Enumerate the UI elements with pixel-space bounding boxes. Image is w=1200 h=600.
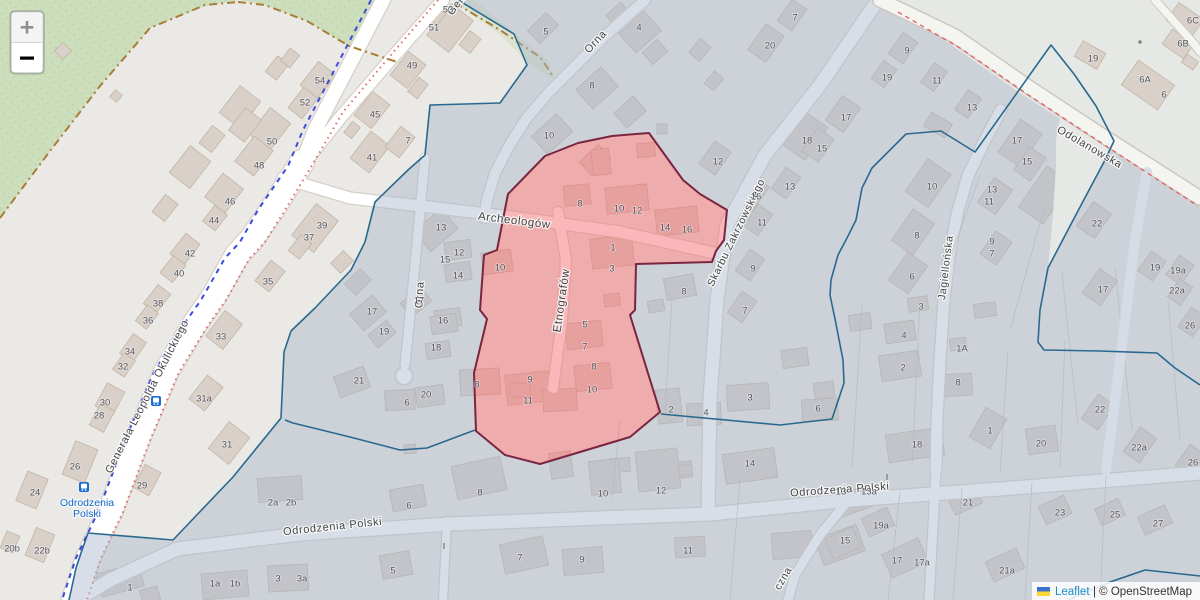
svg-text:10: 10 (927, 182, 938, 193)
svg-text:15: 15 (440, 255, 451, 266)
svg-text:22a: 22a (1131, 443, 1148, 454)
svg-text:5: 5 (390, 566, 395, 577)
svg-text:10: 10 (587, 385, 598, 396)
svg-text:8: 8 (477, 488, 482, 499)
svg-text:11: 11 (523, 396, 533, 407)
svg-text:7: 7 (989, 249, 994, 260)
svg-text:3: 3 (609, 264, 614, 275)
svg-text:17a: 17a (914, 558, 931, 569)
svg-text:11: 11 (683, 546, 693, 557)
svg-text:22a: 22a (1169, 286, 1186, 297)
svg-text:8: 8 (577, 199, 582, 210)
svg-text:40: 40 (174, 269, 185, 280)
svg-text:32: 32 (118, 362, 129, 373)
svg-text:31: 31 (222, 440, 233, 451)
svg-text:27: 27 (1153, 519, 1164, 530)
svg-text:13: 13 (836, 487, 847, 498)
svg-text:44: 44 (209, 216, 220, 227)
svg-text:6: 6 (815, 404, 820, 415)
svg-text:16: 16 (751, 192, 762, 203)
svg-text:13: 13 (436, 223, 447, 234)
svg-text:11: 11 (932, 76, 942, 87)
svg-text:9: 9 (527, 375, 532, 386)
svg-text:7: 7 (517, 553, 522, 564)
svg-text:3a: 3a (297, 574, 308, 585)
svg-text:20: 20 (421, 390, 432, 401)
svg-text:29: 29 (137, 481, 148, 492)
svg-text:28: 28 (94, 411, 105, 422)
svg-text:4: 4 (901, 331, 906, 342)
svg-text:17: 17 (841, 113, 852, 124)
svg-text:11: 11 (984, 197, 994, 208)
svg-text:54: 54 (315, 76, 326, 87)
svg-text:16: 16 (682, 225, 693, 236)
svg-text:19: 19 (1088, 54, 1099, 65)
svg-text:41: 41 (367, 153, 378, 164)
svg-text:1a: 1a (210, 579, 221, 590)
svg-text:12: 12 (713, 157, 724, 168)
svg-text:17: 17 (1098, 285, 1109, 296)
svg-text:42: 42 (185, 249, 196, 260)
svg-text:17: 17 (367, 307, 378, 318)
svg-text:1A: 1A (956, 344, 968, 355)
svg-text:18: 18 (802, 136, 813, 147)
svg-text:9: 9 (579, 555, 584, 566)
svg-text:1: 1 (127, 583, 132, 594)
svg-text:51: 51 (429, 23, 440, 34)
svg-text:20: 20 (1036, 439, 1047, 450)
svg-text:7: 7 (792, 13, 797, 24)
svg-text:12: 12 (632, 206, 643, 217)
svg-text:15: 15 (840, 536, 851, 547)
svg-text:26: 26 (70, 462, 81, 473)
svg-text:8: 8 (681, 287, 686, 298)
svg-text:2: 2 (668, 405, 673, 416)
svg-text:Polski: Polski (73, 508, 101, 520)
svg-text:52: 52 (300, 98, 311, 109)
svg-text:21a: 21a (999, 566, 1016, 577)
svg-text:Leaflet: Leaflet (1055, 586, 1090, 598)
svg-text:3: 3 (918, 302, 923, 313)
svg-text:33: 33 (216, 332, 227, 343)
svg-text:45: 45 (370, 110, 381, 121)
svg-text:4: 4 (703, 408, 708, 419)
svg-text:24: 24 (30, 488, 41, 499)
svg-text:6A: 6A (1139, 75, 1151, 86)
svg-text:6B: 6B (1177, 39, 1189, 50)
svg-text:35: 35 (263, 277, 274, 288)
svg-text:9: 9 (750, 264, 755, 275)
svg-text:2: 2 (900, 363, 905, 374)
svg-text:12: 12 (656, 486, 667, 497)
svg-text:14: 14 (453, 271, 464, 282)
svg-text:3: 3 (275, 574, 280, 585)
svg-text:2a: 2a (268, 498, 279, 509)
svg-text:5: 5 (582, 320, 587, 331)
svg-text:17: 17 (1012, 136, 1023, 147)
svg-text:10: 10 (614, 204, 625, 215)
svg-text:22b: 22b (34, 546, 50, 557)
svg-text:1: 1 (987, 426, 992, 437)
svg-text:6C: 6C (1187, 16, 1199, 27)
svg-text:13: 13 (785, 182, 796, 193)
svg-text:1: 1 (610, 243, 615, 254)
svg-text:17: 17 (892, 556, 903, 567)
svg-text:1b: 1b (230, 579, 241, 590)
svg-text:49: 49 (407, 61, 418, 72)
svg-text:7: 7 (582, 342, 587, 353)
svg-text:18: 18 (912, 440, 923, 451)
svg-text:25: 25 (1110, 510, 1121, 521)
svg-text:19: 19 (882, 73, 893, 84)
svg-text:50: 50 (267, 137, 278, 148)
svg-text:10: 10 (598, 489, 609, 500)
svg-text:11: 11 (757, 218, 767, 229)
svg-text:9: 9 (904, 46, 909, 57)
svg-text:13: 13 (967, 103, 978, 114)
svg-text:6: 6 (1161, 90, 1166, 101)
svg-text:46: 46 (225, 197, 236, 208)
svg-text:26: 26 (1185, 321, 1196, 332)
svg-text:21: 21 (963, 498, 974, 509)
svg-text:12: 12 (454, 248, 465, 259)
svg-text:19: 19 (379, 327, 390, 338)
svg-text:37: 37 (304, 233, 315, 244)
svg-text:6: 6 (406, 501, 411, 512)
svg-text:6: 6 (909, 272, 914, 283)
svg-text:3: 3 (747, 393, 752, 404)
svg-text:7: 7 (742, 306, 747, 317)
svg-text:18: 18 (431, 343, 442, 354)
svg-text:4: 4 (636, 23, 641, 34)
svg-text:17: 17 (414, 296, 425, 307)
svg-text:19a: 19a (873, 521, 890, 532)
svg-text:13a: 13a (861, 487, 878, 498)
svg-text:14: 14 (745, 459, 756, 470)
svg-text:38: 38 (153, 299, 164, 310)
svg-text:31a: 31a (196, 394, 213, 405)
svg-text:36: 36 (143, 316, 154, 327)
svg-text:6: 6 (404, 398, 409, 409)
svg-text:53: 53 (443, 5, 454, 16)
svg-text:8: 8 (591, 362, 596, 373)
svg-text:| © OpenStreetMap: | © OpenStreetMap (1093, 586, 1192, 598)
svg-text:48: 48 (254, 161, 265, 172)
svg-text:8: 8 (955, 378, 960, 389)
svg-text:8: 8 (474, 380, 479, 391)
svg-text:9: 9 (989, 237, 994, 248)
svg-text:15: 15 (1022, 157, 1033, 168)
svg-text:14: 14 (660, 223, 671, 234)
svg-text:34: 34 (125, 347, 136, 358)
svg-text:13: 13 (987, 185, 998, 196)
svg-text:21: 21 (354, 376, 365, 387)
svg-text:22: 22 (1092, 219, 1103, 230)
svg-text:5: 5 (543, 27, 548, 38)
svg-text:10: 10 (495, 263, 506, 274)
svg-text:26: 26 (1188, 458, 1199, 469)
svg-text:20: 20 (765, 41, 776, 52)
svg-text:2b: 2b (286, 498, 297, 509)
svg-text:16: 16 (438, 316, 449, 327)
svg-text:22: 22 (1095, 405, 1106, 416)
svg-text:20b: 20b (4, 544, 20, 555)
svg-text:19a: 19a (1170, 266, 1187, 277)
svg-text:7: 7 (405, 136, 410, 147)
svg-text:30: 30 (100, 398, 111, 409)
svg-text:8: 8 (914, 231, 919, 242)
svg-text:19: 19 (1150, 263, 1161, 274)
svg-text:8: 8 (589, 81, 594, 92)
svg-text:23: 23 (1055, 508, 1066, 519)
svg-text:15: 15 (817, 144, 828, 155)
svg-text:39: 39 (317, 221, 328, 232)
svg-text:10: 10 (544, 131, 555, 142)
